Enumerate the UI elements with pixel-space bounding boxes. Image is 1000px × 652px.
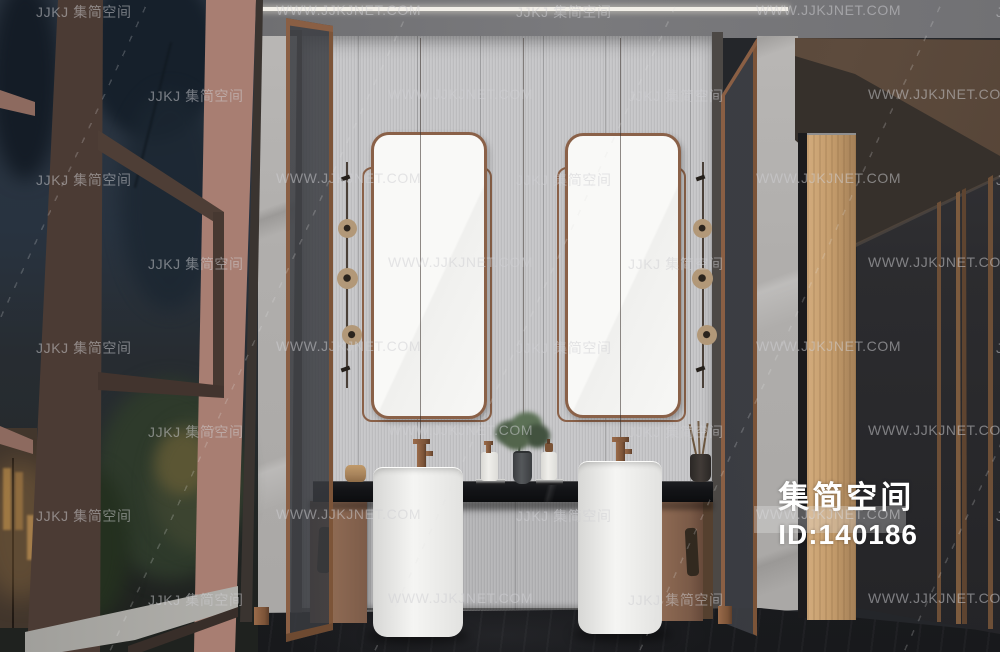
watermark-text: WWW.JJKJNET.COM: [388, 590, 533, 606]
watermark-text: JJKJ 集简空间: [148, 86, 244, 106]
id-badge: 集简空间 ID:140186: [778, 472, 918, 551]
watermark-text: JJKJ 集简空间: [516, 506, 612, 526]
watermark-text: JJKJ 集简空间: [996, 2, 1000, 22]
watermark-text: JJKJ 集简空间: [36, 338, 132, 358]
watermark-text: JJKJ 集简空间: [996, 506, 1000, 526]
watermark-text: JJKJ 集简空间: [996, 170, 1000, 190]
watermark-text: JJKJ 集简空间: [148, 254, 244, 274]
watermark-text: WWW.JJKJNET.COM: [276, 338, 421, 354]
watermark-text: JJKJ 集简空间: [628, 254, 724, 274]
watermark-text: WWW.JJKJNET.COM: [756, 2, 901, 18]
watermark-text: JJKJ 集简空间: [628, 86, 724, 106]
watermark-text: JJKJ 集简空间: [36, 2, 132, 22]
watermark-text: JJKJ 集简空间: [996, 338, 1000, 358]
watermark-text: JJKJ 集简空间: [516, 338, 612, 358]
watermark-text: WWW.JJKJNET.COM: [868, 590, 1000, 606]
watermark-text: JJKJ 集简空间: [516, 2, 612, 22]
asset-id-label: ID:140186: [778, 519, 918, 551]
watermark-text: WWW.JJKJNET.COM: [276, 2, 421, 18]
watermark-layer: JJKJ 集简空间WWW.JJKJNET.COMJJKJ 集简空间WWW.JJK…: [0, 0, 1000, 652]
watermark-text: WWW.JJKJNET.COM: [868, 422, 1000, 438]
watermark-text: WWW.JJKJNET.COM: [868, 254, 1000, 270]
watermark-text: JJKJ 集简空间: [516, 170, 612, 190]
watermark-text: JJKJ 集简空间: [148, 590, 244, 610]
interior-render-scene: JJKJ 集简空间WWW.JJKJNET.COMJJKJ 集简空间WWW.JJK…: [0, 0, 1000, 652]
watermark-text: JJKJ 集简空间: [628, 590, 724, 610]
watermark-text: WWW.JJKJNET.COM: [388, 422, 533, 438]
watermark-text: JJKJ 集简空间: [36, 506, 132, 526]
watermark-text: JJKJ 集简空间: [148, 422, 244, 442]
watermark-text: WWW.JJKJNET.COM: [756, 338, 901, 354]
watermark-text: WWW.JJKJNET.COM: [388, 86, 533, 102]
watermark-text: WWW.JJKJNET.COM: [756, 170, 901, 186]
watermark-text: WWW.JJKJNET.COM: [276, 506, 421, 522]
watermark-text: JJKJ 集简空间: [36, 170, 132, 190]
watermark-text: WWW.JJKJNET.COM: [276, 170, 421, 186]
watermark-text: WWW.JJKJNET.COM: [388, 254, 533, 270]
watermark-text: WWW.JJKJNET.COM: [868, 86, 1000, 102]
watermark-text: JJKJ 集简空间: [628, 422, 724, 442]
